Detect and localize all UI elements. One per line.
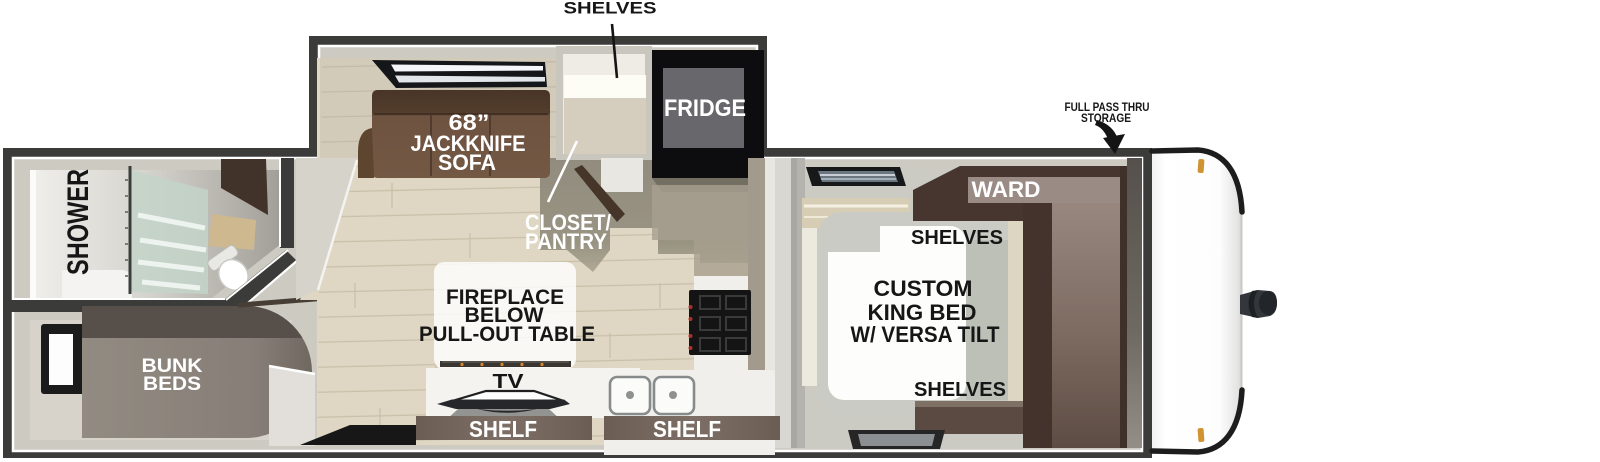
svg-text:PANTRY: PANTRY xyxy=(525,229,607,254)
svg-text:WARD: WARD xyxy=(972,177,1041,202)
svg-text:SHELF: SHELF xyxy=(469,416,537,442)
svg-text:SHELVES: SHELVES xyxy=(914,379,1006,401)
svg-text:PULL-OUT TABLE: PULL-OUT TABLE xyxy=(419,323,595,346)
svg-text:TV: TV xyxy=(493,371,525,393)
svg-text:SHELF: SHELF xyxy=(653,416,721,442)
svg-text:BEDS: BEDS xyxy=(143,374,201,395)
svg-text:SHELVES: SHELVES xyxy=(564,0,657,18)
svg-text:FRIDGE: FRIDGE xyxy=(664,95,746,122)
svg-text:STORAGE: STORAGE xyxy=(1081,113,1131,125)
svg-text:CUSTOM: CUSTOM xyxy=(874,276,973,301)
svg-text:SHOWER: SHOWER xyxy=(62,169,95,275)
svg-text:SHELVES: SHELVES xyxy=(911,227,1003,249)
svg-text:SOFA: SOFA xyxy=(438,150,496,175)
svg-text:W/ VERSA TILT: W/ VERSA TILT xyxy=(851,322,1001,347)
